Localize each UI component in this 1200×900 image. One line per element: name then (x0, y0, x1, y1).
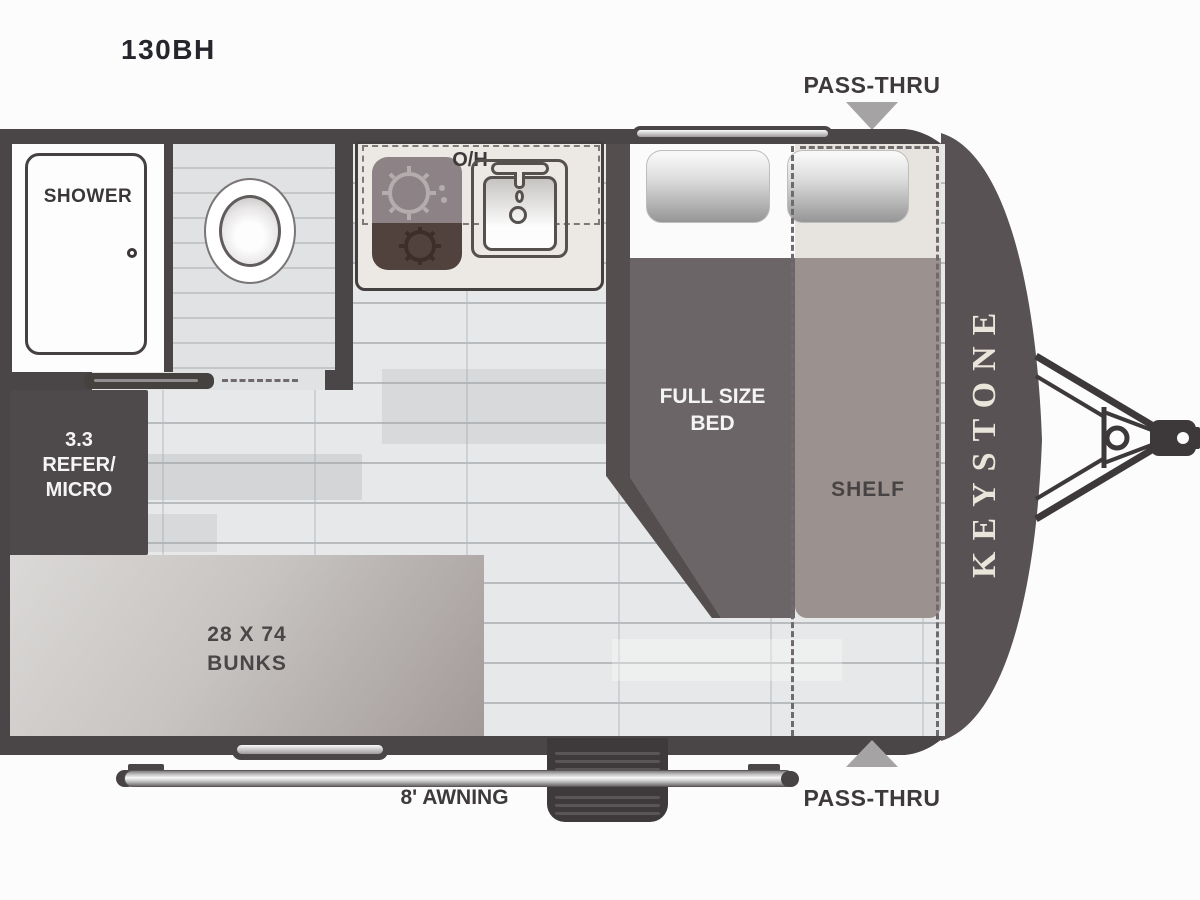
floor-plank-patch (612, 639, 842, 681)
pillow (787, 150, 909, 223)
floor-plank-patch (382, 369, 607, 444)
step-ridge (555, 796, 660, 799)
bathroom-divider-wall (335, 144, 353, 390)
step-ridge (555, 812, 660, 815)
bunks-label: 28 X 74 BUNKS (10, 555, 484, 678)
shelf-top-dash-line (800, 146, 938, 149)
bunk-window-glass (237, 745, 383, 754)
bunks-label-line1: 28 X 74 (10, 620, 484, 649)
pass-thru-up-arrow-icon (846, 740, 898, 767)
refrigerator-microwave: 3.3 REFER/ MICRO (10, 390, 148, 555)
bunks: 28 X 74 BUNKS (10, 555, 484, 736)
bed-label: FULL SIZE BED (630, 383, 795, 437)
step-ridge (555, 752, 660, 755)
shower-drain-icon (127, 248, 137, 258)
hitch-a-frame (1036, 356, 1162, 519)
bunk-window (232, 741, 388, 760)
shelf-label: SHELF (795, 478, 941, 502)
pass-thru-bottom-label: PASS-THRU (786, 785, 958, 812)
awning-roller-bar (124, 770, 794, 787)
hitch-coupler (1150, 420, 1200, 456)
bathroom-divider-wall-foot (325, 370, 353, 390)
door-slide-dashes (222, 379, 298, 382)
pillow (646, 150, 770, 223)
stove (372, 157, 462, 270)
pocket-door-highlight (94, 379, 198, 382)
shower-right-wall (164, 144, 173, 372)
bed-label-line1: FULL SIZE (630, 383, 795, 410)
step-ridge (555, 804, 660, 807)
faucet-drop (515, 190, 524, 203)
refer-label: 3.3 REFER/ MICRO (10, 390, 148, 503)
shower-label: SHOWER (25, 186, 151, 208)
bedroom-window (632, 126, 833, 143)
floor-plank-patch (147, 454, 362, 500)
bed-shelf-dash-line (791, 146, 794, 736)
brand-logo-text: KEYSTONE (962, 268, 1008, 612)
bed-label-line2: BED (630, 410, 795, 437)
faucet-stem (514, 172, 525, 189)
bathroom-pocket-door (84, 373, 214, 389)
awning-label: 8' AWNING (372, 786, 537, 810)
front-storage-dash-line (936, 147, 939, 736)
sink-drain-icon (509, 206, 527, 224)
refer-label-line3: MICRO (10, 478, 148, 503)
refer-label-line1: 3.3 (10, 428, 148, 453)
shelf (795, 258, 941, 618)
refer-label-line2: REFER/ (10, 453, 148, 478)
bunks-label-line2: BUNKS (10, 649, 484, 678)
bedroom-window-glass (637, 130, 828, 137)
bathroom-bottom-wall (12, 372, 92, 390)
step-ridge (555, 760, 660, 763)
toilet-bowl (219, 195, 281, 267)
floorplan-page: 130BH PASS-THRU (0, 0, 1200, 900)
